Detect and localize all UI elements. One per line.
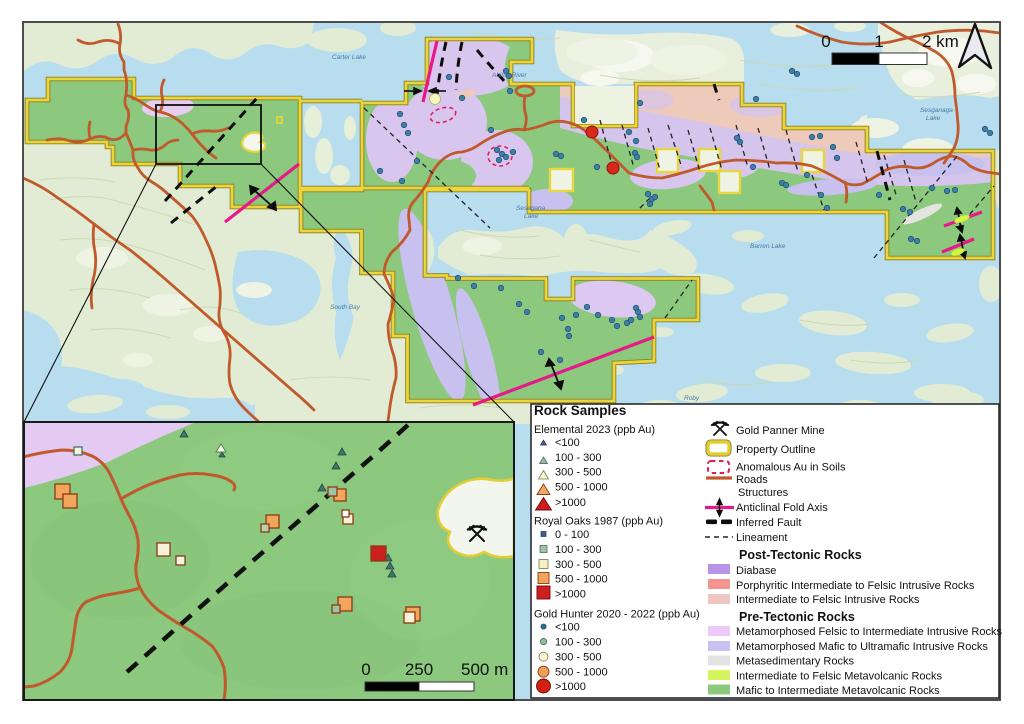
svg-text:Roads: Roads — [736, 474, 768, 486]
svg-text:1: 1 — [874, 32, 883, 51]
svg-text:0 - 100: 0 - 100 — [555, 529, 589, 541]
svg-text:Sesganaga: Sesganaga — [920, 107, 953, 114]
svg-text:Intermediate to Felsic Intrusi: Intermediate to Felsic Intrusive Rocks — [736, 594, 920, 606]
svg-text:300 - 500: 300 - 500 — [555, 652, 601, 664]
svg-text:300 - 500: 300 - 500 — [555, 559, 601, 571]
svg-text:Sesegana: Sesegana — [516, 205, 546, 212]
svg-text:<100: <100 — [555, 437, 580, 449]
svg-text:100 - 300: 100 - 300 — [555, 544, 601, 556]
svg-text:>1000: >1000 — [555, 589, 586, 601]
svg-text:Diabase: Diabase — [736, 565, 776, 577]
svg-text:100 - 300: 100 - 300 — [555, 452, 601, 464]
svg-text:Lake: Lake — [926, 115, 940, 122]
svg-text:Intermediate to Felsic Metavol: Intermediate to Felsic Metavolcanic Rock… — [736, 671, 943, 683]
svg-text:Metamorphosed Felsic to Interm: Metamorphosed Felsic to Intermediate Int… — [736, 626, 1002, 638]
svg-text:500 - 1000: 500 - 1000 — [555, 667, 608, 679]
svg-text:Post-Tectonic Rocks: Post-Tectonic Rocks — [739, 548, 862, 562]
svg-text:500 m: 500 m — [461, 660, 508, 679]
svg-text:Metasedimentary Rocks: Metasedimentary Rocks — [736, 656, 854, 668]
svg-text:<100: <100 — [555, 622, 580, 634]
svg-text:100 - 300: 100 - 300 — [555, 637, 601, 649]
svg-text:Pre-Tectonic Rocks: Pre-Tectonic Rocks — [739, 610, 855, 624]
svg-text:>1000: >1000 — [555, 497, 586, 509]
svg-text:Porphyritic Intermediate to Fe: Porphyritic Intermediate to Felsic Intru… — [736, 580, 975, 592]
svg-text:0: 0 — [821, 32, 830, 51]
svg-text:Inferred Fault: Inferred Fault — [736, 517, 801, 529]
svg-text:Gold Hunter 2020 - 2022 (ppb A: Gold Hunter 2020 - 2022 (ppb Au) — [534, 609, 700, 621]
svg-text:Metamorphosed Mafic to Ultrama: Metamorphosed Mafic to Ultramafic Intrus… — [736, 641, 988, 653]
svg-text:300 - 500: 300 - 500 — [555, 467, 601, 479]
svg-text:Gold Panner Mine: Gold Panner Mine — [736, 425, 825, 437]
svg-text:Lake: Lake — [524, 213, 538, 220]
svg-text:Anomalous Au in Soils: Anomalous Au in Soils — [736, 462, 846, 474]
svg-text:Anticlinal Fold Axis: Anticlinal Fold Axis — [736, 502, 828, 514]
svg-text:>1000: >1000 — [555, 681, 586, 693]
svg-text:Abitibi River: Abitibi River — [491, 72, 528, 79]
svg-text:Lineament: Lineament — [736, 532, 787, 544]
svg-text:Elemental 2023 (ppb Au): Elemental 2023 (ppb Au) — [534, 424, 655, 436]
svg-text:0: 0 — [361, 660, 370, 679]
svg-text:Mafic to Intermediate Metavolc: Mafic to Intermediate Metavolcanic Rocks — [736, 685, 940, 697]
svg-text:2 km: 2 km — [922, 32, 959, 51]
svg-text:Barren Lake: Barren Lake — [750, 243, 786, 250]
svg-text:Structures: Structures — [738, 487, 789, 499]
svg-text:Property Outline: Property Outline — [736, 444, 815, 456]
svg-text:Royal Oaks 1987 (ppb Au): Royal Oaks 1987 (ppb Au) — [534, 516, 663, 528]
svg-text:Rock Samples: Rock Samples — [534, 403, 626, 418]
svg-text:250: 250 — [405, 660, 433, 679]
svg-text:Roby: Roby — [684, 395, 700, 402]
svg-text:500 - 1000: 500 - 1000 — [555, 574, 608, 586]
svg-text:Carter Lake: Carter Lake — [332, 54, 366, 61]
svg-text:South Bay: South Bay — [330, 304, 361, 311]
svg-text:500 - 1000: 500 - 1000 — [555, 482, 608, 494]
